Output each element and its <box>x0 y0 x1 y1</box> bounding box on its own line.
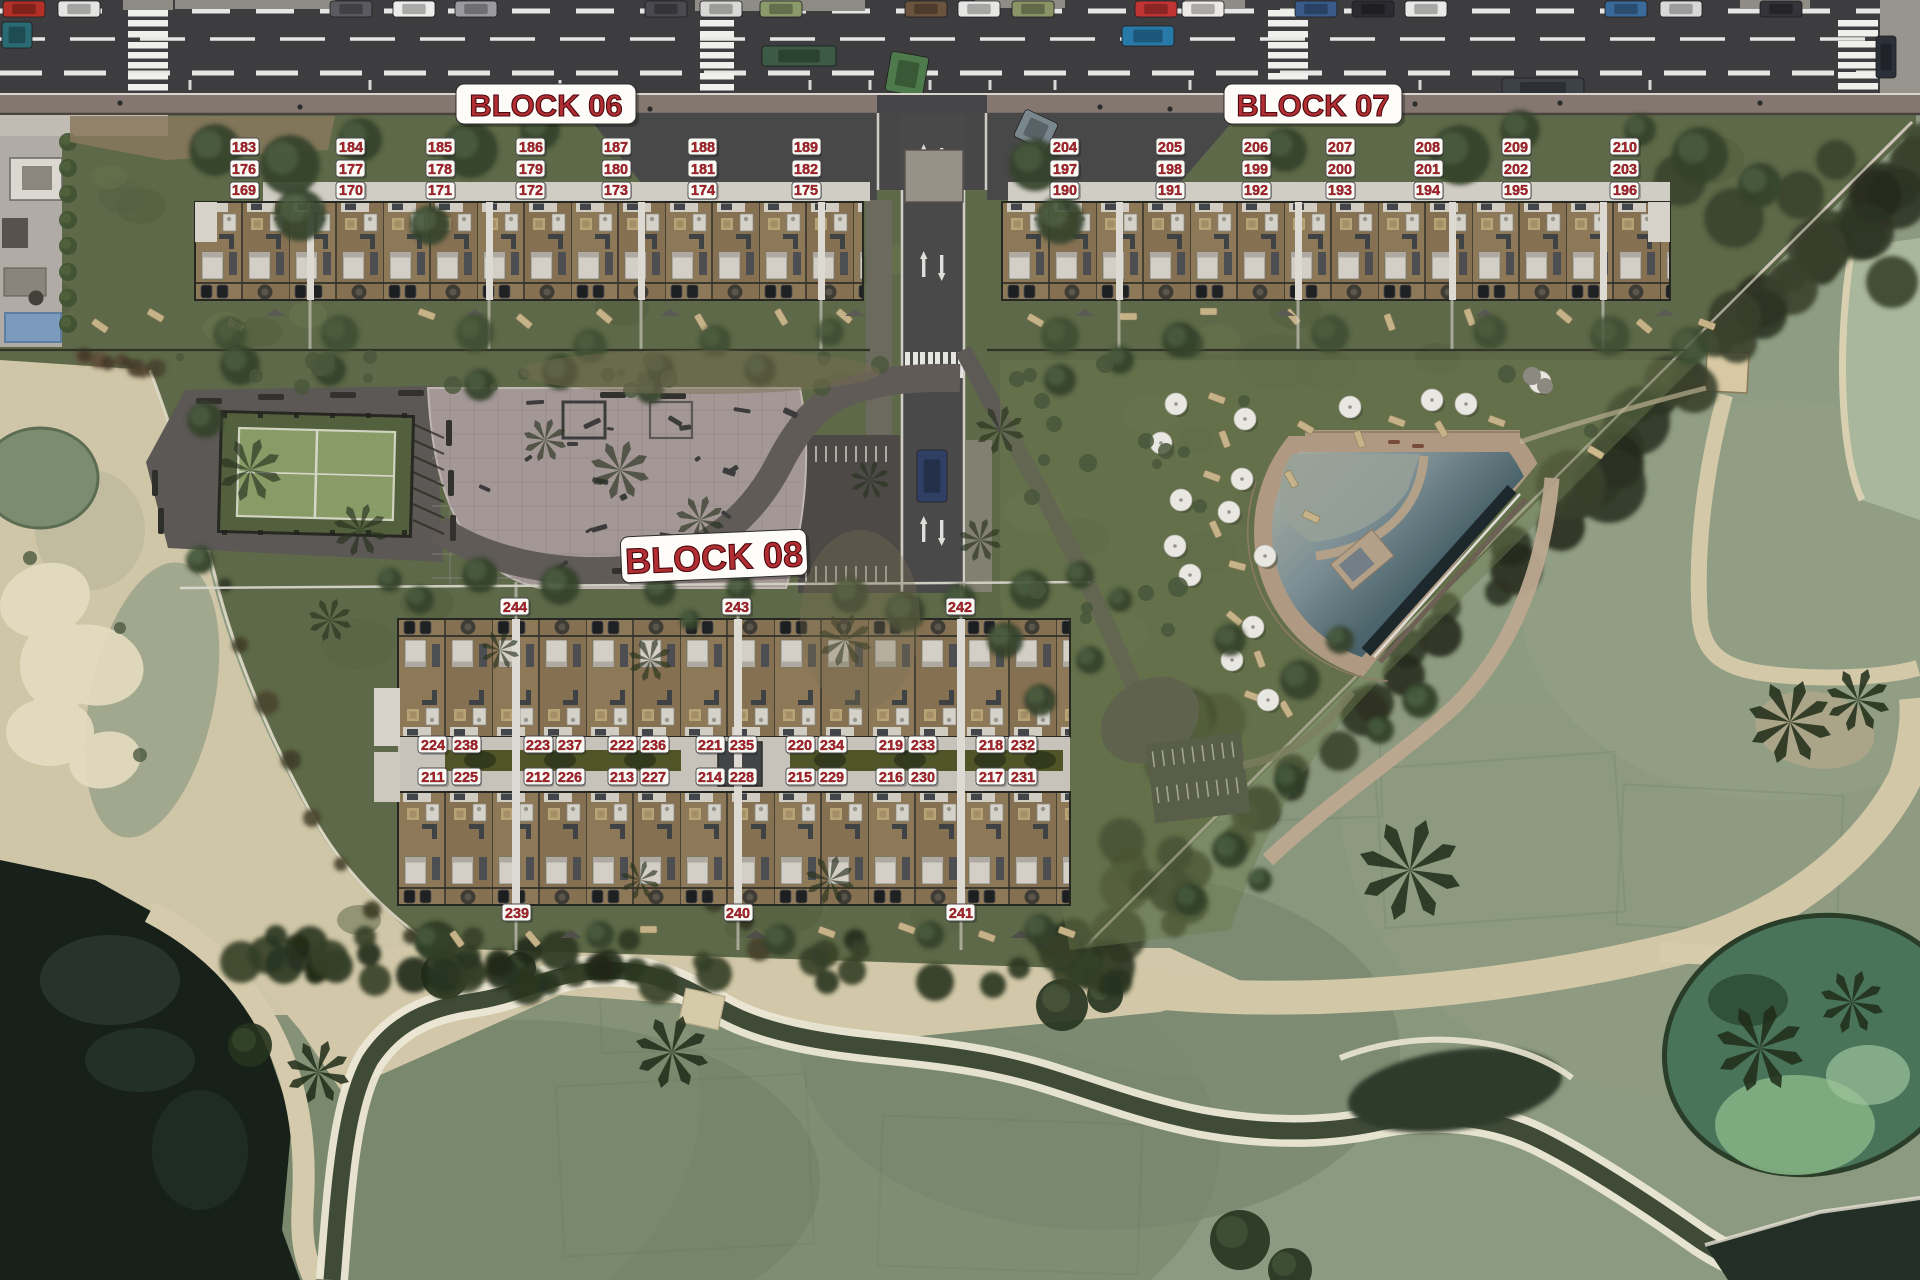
svg-text:177: 177 <box>339 162 363 178</box>
svg-text:235: 235 <box>730 738 754 754</box>
svg-text:223: 223 <box>526 738 550 754</box>
svg-text:212: 212 <box>526 770 550 786</box>
svg-text:239: 239 <box>505 906 529 922</box>
svg-text:230: 230 <box>911 770 935 786</box>
svg-text:233: 233 <box>911 738 935 754</box>
svg-text:178: 178 <box>428 162 452 178</box>
svg-text:191: 191 <box>1158 183 1182 199</box>
svg-text:202: 202 <box>1504 162 1528 178</box>
svg-text:169: 169 <box>232 183 256 199</box>
svg-text:195: 195 <box>1504 183 1528 199</box>
svg-text:244: 244 <box>503 600 527 616</box>
svg-text:218: 218 <box>979 738 1003 754</box>
svg-text:194: 194 <box>1416 183 1440 199</box>
svg-text:231: 231 <box>1011 770 1035 786</box>
svg-text:188: 188 <box>691 140 715 156</box>
svg-text:240: 240 <box>726 906 750 922</box>
svg-text:180: 180 <box>604 162 628 178</box>
svg-text:205: 205 <box>1158 140 1182 156</box>
svg-text:192: 192 <box>1244 183 1268 199</box>
svg-text:207: 207 <box>1328 140 1352 156</box>
svg-text:225: 225 <box>454 770 478 786</box>
svg-text:BLOCK 07: BLOCK 07 <box>1236 88 1389 123</box>
svg-text:174: 174 <box>691 183 715 199</box>
svg-text:185: 185 <box>428 140 452 156</box>
svg-text:173: 173 <box>604 183 628 199</box>
svg-text:229: 229 <box>820 770 844 786</box>
svg-text:184: 184 <box>339 140 363 156</box>
svg-text:181: 181 <box>691 162 715 178</box>
svg-text:170: 170 <box>339 183 363 199</box>
svg-text:211: 211 <box>421 770 444 786</box>
svg-text:199: 199 <box>1244 162 1268 178</box>
svg-text:236: 236 <box>642 738 666 754</box>
svg-text:237: 237 <box>558 738 582 754</box>
svg-text:200: 200 <box>1328 162 1352 178</box>
svg-text:242: 242 <box>948 600 972 616</box>
svg-text:197: 197 <box>1053 162 1077 178</box>
svg-text:204: 204 <box>1053 140 1077 156</box>
svg-text:238: 238 <box>454 738 478 754</box>
svg-text:176: 176 <box>232 162 256 178</box>
svg-text:206: 206 <box>1244 140 1268 156</box>
svg-text:183: 183 <box>232 140 256 156</box>
svg-text:189: 189 <box>794 140 818 156</box>
svg-text:219: 219 <box>879 738 903 754</box>
svg-text:222: 222 <box>610 738 634 754</box>
svg-text:187: 187 <box>604 140 628 156</box>
svg-text:190: 190 <box>1053 183 1077 199</box>
svg-text:209: 209 <box>1504 140 1528 156</box>
svg-text:226: 226 <box>558 770 582 786</box>
svg-text:BLOCK 06: BLOCK 06 <box>469 88 622 123</box>
svg-text:201: 201 <box>1416 162 1440 178</box>
svg-text:241: 241 <box>949 906 973 922</box>
svg-text:193: 193 <box>1328 183 1352 199</box>
svg-text:196: 196 <box>1613 183 1637 199</box>
svg-text:214: 214 <box>698 770 722 786</box>
svg-text:198: 198 <box>1158 162 1182 178</box>
svg-text:171: 171 <box>428 183 452 199</box>
svg-text:179: 179 <box>519 162 543 178</box>
svg-text:172: 172 <box>519 183 543 199</box>
svg-text:182: 182 <box>794 162 818 178</box>
svg-text:220: 220 <box>788 738 812 754</box>
svg-text:217: 217 <box>979 770 1003 786</box>
svg-text:227: 227 <box>642 770 666 786</box>
svg-text:215: 215 <box>788 770 812 786</box>
svg-text:228: 228 <box>730 770 754 786</box>
svg-text:221: 221 <box>698 738 722 754</box>
svg-text:175: 175 <box>794 183 818 199</box>
svg-text:203: 203 <box>1613 162 1637 178</box>
svg-text:213: 213 <box>610 770 634 786</box>
svg-text:208: 208 <box>1416 140 1440 156</box>
svg-text:232: 232 <box>1011 738 1035 754</box>
svg-text:216: 216 <box>879 770 903 786</box>
svg-text:186: 186 <box>519 140 543 156</box>
svg-text:210: 210 <box>1613 140 1637 156</box>
svg-text:243: 243 <box>725 600 749 616</box>
svg-text:234: 234 <box>820 738 844 754</box>
svg-text:224: 224 <box>421 738 445 754</box>
svg-text:BLOCK 08: BLOCK 08 <box>624 533 804 582</box>
